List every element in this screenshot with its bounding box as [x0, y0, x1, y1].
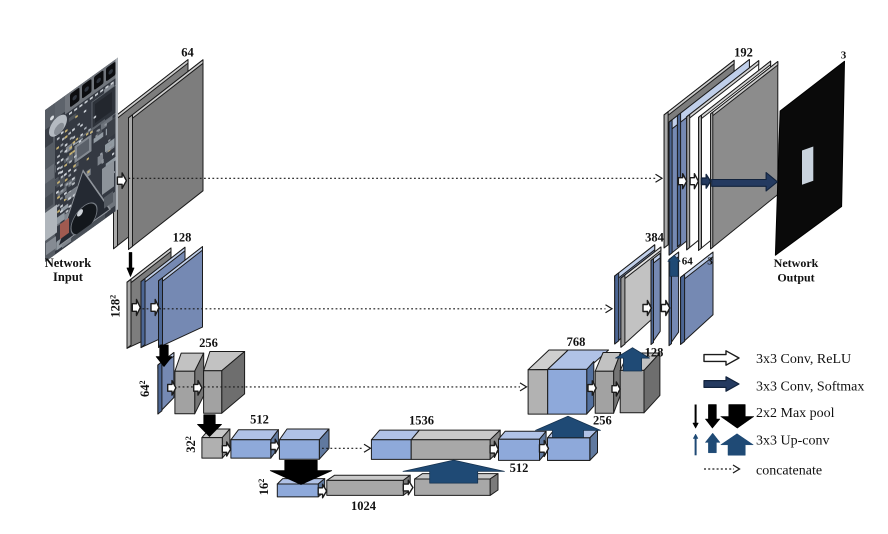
- svg-text:Input: Input: [53, 270, 84, 284]
- svg-text:384: 384: [645, 231, 665, 245]
- svg-text:concatenate: concatenate: [756, 464, 822, 479]
- svg-text:3x3 Up-conv: 3x3 Up-conv: [756, 434, 830, 449]
- svg-text:3: 3: [841, 50, 847, 62]
- svg-text:256: 256: [199, 336, 218, 350]
- svg-text:Network: Network: [774, 256, 819, 270]
- svg-text:Output: Output: [777, 271, 814, 285]
- svg-text:512: 512: [250, 413, 269, 427]
- svg-text:512: 512: [510, 461, 529, 475]
- svg-text:3: 3: [707, 256, 713, 268]
- svg-text:3x3 Conv, ReLU: 3x3 Conv, ReLU: [756, 352, 851, 367]
- svg-text:1536: 1536: [409, 414, 434, 428]
- svg-text:2x2 Max pool: 2x2 Max pool: [756, 406, 835, 421]
- svg-text:256: 256: [593, 414, 612, 428]
- svg-text:1024: 1024: [351, 499, 377, 513]
- svg-text:128: 128: [173, 231, 192, 245]
- svg-text:64: 64: [181, 46, 194, 60]
- svg-text:192: 192: [734, 46, 753, 60]
- svg-text:64: 64: [682, 256, 694, 268]
- svg-text:128: 128: [645, 346, 664, 360]
- svg-text:3x3 Conv, Softmax: 3x3 Conv, Softmax: [756, 380, 864, 395]
- svg-text:768: 768: [567, 335, 586, 349]
- svg-text:Network: Network: [45, 256, 92, 270]
